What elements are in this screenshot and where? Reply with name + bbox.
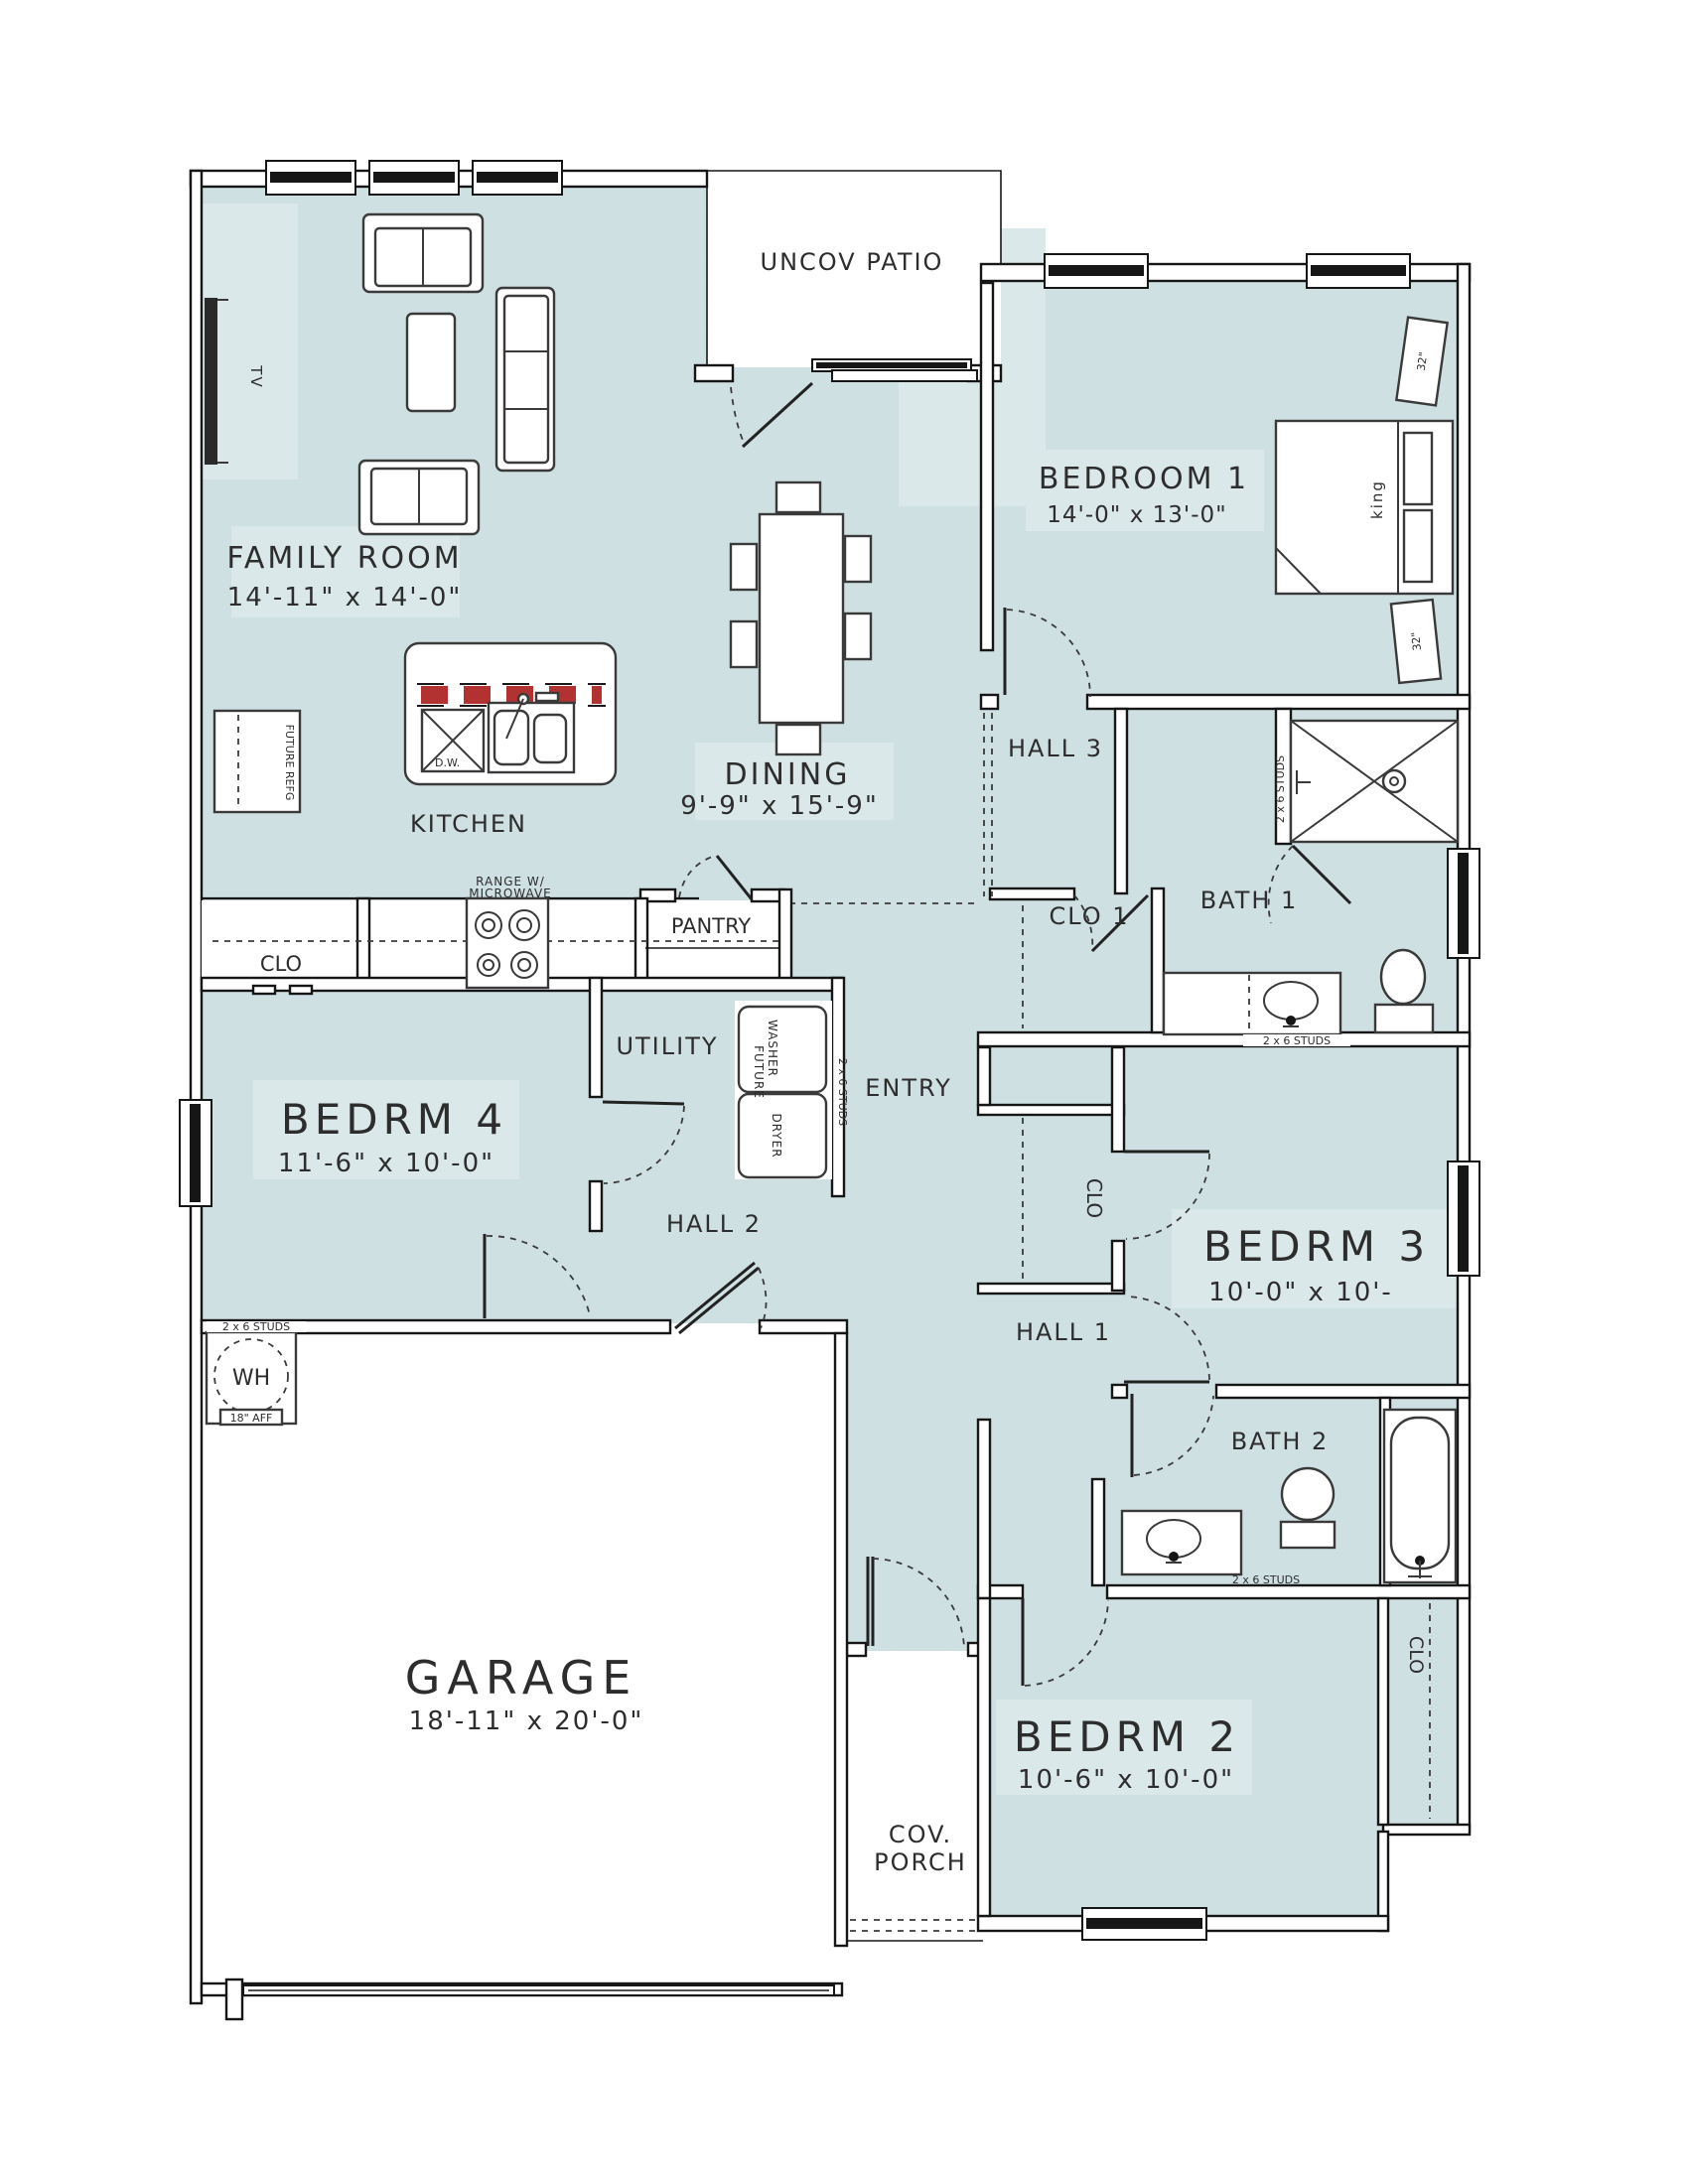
dryer-label: DRYER [770, 1113, 783, 1158]
family-room-label: FAMILY ROOM [226, 541, 462, 576]
bedrm3-dims: 10'-0" x 10'- [1208, 1278, 1393, 1307]
window [1448, 849, 1479, 958]
washer-label2: FUTURE [752, 1045, 766, 1099]
nightstand-label: 32" [1409, 631, 1424, 651]
water-heater: WH 18" AFF [207, 1332, 296, 1425]
entry-label: ENTRY [865, 1074, 952, 1102]
window [1307, 254, 1410, 288]
bath2-vanity [1122, 1511, 1241, 1574]
hall2-label: HALL 2 [666, 1210, 762, 1238]
window [1448, 1161, 1479, 1276]
window [266, 161, 355, 195]
clo-mid-label: CLO [1082, 1178, 1106, 1218]
cov-porch-label1: COV. [889, 1821, 952, 1848]
studs-note: 2 x 6 STUDS [1263, 1034, 1331, 1047]
garage-label: GARAGE [405, 1651, 638, 1705]
window [1082, 1908, 1206, 1940]
floor-plan: D.W. FUTURE REFG [0, 0, 1688, 2184]
bathtub [1384, 1410, 1456, 1582]
laundry: WASHER FUTURE DRYER [735, 1001, 832, 1179]
window [369, 161, 459, 195]
dining-dims: 9'-9" x 15'-9" [680, 791, 879, 821]
garage-door [243, 1985, 834, 1995]
shower [1291, 721, 1458, 842]
bedrm2-label: BEDRM 2 [1014, 1712, 1240, 1761]
bedroom1-dims: 14'-0" x 13'-0" [1047, 502, 1226, 528]
clo1-label: CLO 1 [1049, 902, 1129, 930]
hall3-label: HALL 3 [1008, 735, 1103, 762]
bath1-vanity [1164, 973, 1340, 1034]
washer-label: WASHER [766, 1020, 779, 1077]
sofa-top [363, 214, 483, 292]
garage-dims: 18'-11" x 20'-0" [409, 1706, 644, 1736]
clo-bedrm2-label: CLO [1405, 1636, 1427, 1674]
bedrm3-label: BEDRM 3 [1203, 1222, 1430, 1271]
wh-height-label: 18" AFF [230, 1412, 273, 1425]
bedroom1-label: BEDROOM 1 [1039, 462, 1249, 496]
sliding-door [812, 359, 977, 381]
window [473, 161, 562, 195]
bath2-toilet [1281, 1468, 1335, 1548]
family-room-dims: 14'-11" x 14'-0" [227, 583, 463, 613]
bedrm2-dims: 10'-6" x 10'-0" [1018, 1765, 1234, 1795]
bedrm4-label: BEDRM 4 [281, 1095, 507, 1144]
armchair [407, 314, 455, 411]
future-refg-label: FUTURE REFG [283, 725, 296, 801]
range [467, 898, 548, 988]
bath2-label: BATH 2 [1231, 1428, 1330, 1455]
nightstand: 32" [1391, 600, 1441, 683]
studs-note: 2 x 6 STUDS [1274, 755, 1287, 823]
kitchen-sink [489, 693, 574, 772]
king-label: king [1368, 479, 1386, 519]
window [180, 1100, 211, 1206]
studs-note: 2 x 6 STUDS [836, 1058, 849, 1126]
kitchen-island: D.W. [405, 643, 616, 784]
bedrm4-dims: 11'-6" x 10'-0" [278, 1149, 494, 1178]
hall1-label: HALL 1 [1016, 1318, 1111, 1346]
studs-note: 2 x 6 STUDS [222, 1320, 290, 1333]
nightstand-label: 32" [1415, 351, 1431, 372]
uncov-patio-label: UNCOV PATIO [761, 248, 944, 276]
uncovered-patio-outline [695, 171, 1001, 381]
dining-label: DINING [725, 757, 851, 792]
dishwasher-label: D.W. [435, 756, 460, 769]
sofa-right [496, 288, 554, 471]
kitchen-label: KITCHEN [410, 810, 527, 838]
pantry-label: PANTRY [671, 914, 751, 938]
clo-left-label: CLO [260, 952, 302, 976]
cov-porch-label2: PORCH [874, 1848, 967, 1876]
dishwasher: D.W. [422, 710, 484, 771]
king-bed: king [1276, 421, 1453, 594]
future-refrigerator: FUTURE REFG [214, 711, 300, 812]
tv-label: TV [247, 364, 265, 388]
window [1045, 254, 1148, 288]
studs-note: 2 x 6 STUDS [1232, 1573, 1300, 1586]
sofa-bottom [359, 461, 479, 534]
wh-label: WH [232, 1366, 270, 1391]
bath1-label: BATH 1 [1200, 887, 1299, 914]
range-label2: MICROWAVE [469, 887, 552, 900]
utility-label: UTILITY [616, 1032, 718, 1060]
